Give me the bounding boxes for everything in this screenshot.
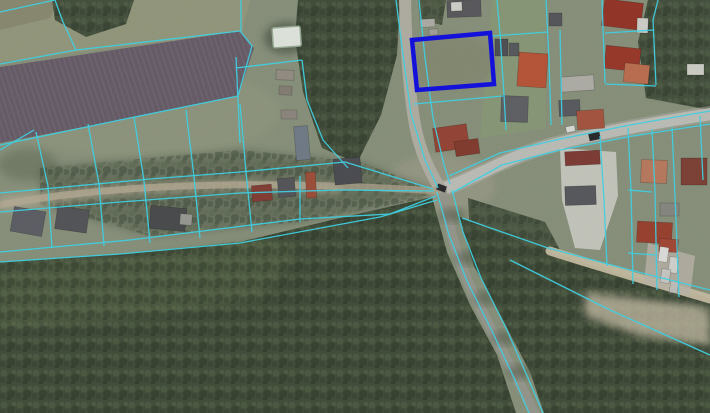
map-viewport[interactable] bbox=[0, 0, 710, 413]
photo-grain-overlay bbox=[0, 0, 710, 413]
aerial-map-canvas[interactable] bbox=[0, 0, 710, 413]
